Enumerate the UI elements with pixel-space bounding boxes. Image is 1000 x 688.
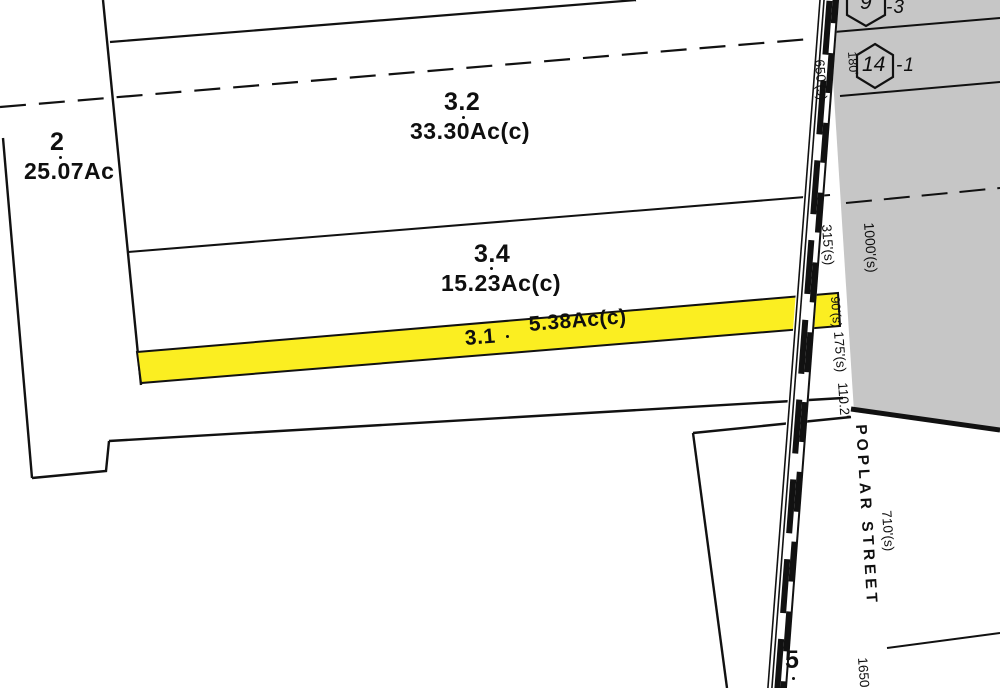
parcel-2-west-boundary bbox=[3, 138, 32, 478]
parcel-3-4-id[interactable]: 3.4 bbox=[474, 242, 510, 267]
parcel-5-id[interactable]: 5 bbox=[785, 648, 799, 673]
parcel-3-4-area: 15.23Ac(c) bbox=[441, 272, 561, 295]
dimension-1650: 1650 bbox=[856, 657, 872, 688]
hex-marker-14-number: 14 bbox=[862, 54, 885, 75]
parcel-3-1-id[interactable]: 3.1 bbox=[464, 326, 496, 349]
dimension-315: 315'(s) bbox=[820, 224, 836, 266]
boundary-line bbox=[887, 633, 1000, 648]
dimension-180: 180' bbox=[846, 51, 860, 75]
parcel-2-id[interactable]: 2 bbox=[50, 130, 64, 155]
parcel-3-2-id[interactable]: 3.2 bbox=[444, 90, 480, 115]
road-dash-markings bbox=[775, 1, 829, 688]
hex-marker-9-suffix: -3 bbox=[886, 0, 905, 17]
parcel-5-north-boundary bbox=[693, 417, 851, 433]
parcel-3-west-boundary bbox=[103, 0, 141, 385]
dimension-1000: 1000'(s) bbox=[862, 222, 879, 273]
road-poplar-street bbox=[764, 0, 841, 688]
dimension-110: 110.2' bbox=[836, 382, 852, 418]
tax-parcel-map: 2 25.07Ac 3.2 33.30Ac(c) 3.4 15.23Ac(c) … bbox=[0, 0, 1000, 688]
dashed-boundary-line bbox=[0, 38, 822, 107]
parcel-center-dot bbox=[506, 335, 509, 338]
dimension-90: 90'(s) bbox=[829, 296, 844, 328]
hex-marker-9-number: 9 bbox=[860, 0, 872, 13]
dimension-650: 650'(s) bbox=[813, 59, 829, 101]
parcel-5-west-boundary bbox=[693, 433, 727, 688]
hex-marker-14-suffix: -1 bbox=[896, 56, 915, 75]
parcel-center-dot bbox=[792, 677, 795, 680]
parcel-2-area: 25.07Ac bbox=[24, 160, 114, 183]
dimension-175: 175'(s) bbox=[832, 331, 848, 373]
parcel-map-canvas bbox=[0, 0, 1000, 688]
dimension-710: 710'(s) bbox=[880, 510, 896, 552]
south-boundary-line bbox=[109, 398, 843, 441]
parcel-3-2-north-boundary bbox=[110, 0, 636, 42]
parcel-2-south-boundary bbox=[32, 441, 109, 478]
parcel-3-2-area: 33.30Ac(c) bbox=[410, 120, 530, 143]
